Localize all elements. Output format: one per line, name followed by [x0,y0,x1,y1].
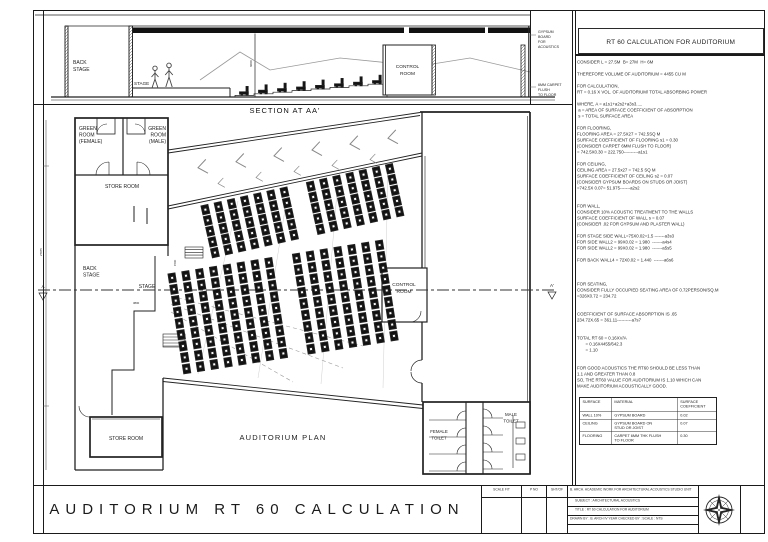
svg-text:(MALE): (MALE) [149,139,166,145]
svg-text:TO FLOOR: TO FLOOR [538,93,557,97]
border-top [33,10,765,11]
male-toilet-label: MALE [505,412,517,417]
svg-text:ACOUSTICS: ACOUSTICS [538,45,560,49]
section-seats [240,75,382,95]
calc-panel-body: CONSIDER L = 27.5M B= 27M H= 6M THEREFOR… [577,59,767,393]
carpet-note: 6MM CARPET [538,83,562,87]
control-room-label: CONTROL [392,282,416,288]
table-row: FLOORINGCARPET 6MM THK FLUSHTO FLOOR0.30 [580,432,717,445]
green-room-female-label: GREEN [79,126,97,132]
tb-cell-2: P NO [522,488,546,497]
material-table-wrap: SURFACEMATERIALSURFACECOEFFICIENTWALL 10… [579,397,719,493]
ceiling-band [132,28,530,34]
human-figure [152,66,159,88]
table-header: SURFACECOEFFICIENT [677,398,716,412]
calc-panel-title-box: RT 60 CALCULATION FOR AUDITORIUM [578,28,764,54]
section-back-stage-label2: STAGE [73,67,90,73]
stage-walls [112,256,155,415]
border-bottom [33,533,765,534]
section-control-room-label: CONTROL [396,64,420,70]
hall-top-wall [168,113,420,154]
tb-line [567,485,568,533]
svg-text:FOR: FOR [538,40,546,44]
svg-text:FLUSH: FLUSH [538,88,550,92]
tb-line [481,497,567,498]
svg-text:TOILET: TOILET [503,419,519,424]
table-cell: CARPET 6MM THK FLUSHTO FLOOR [612,432,678,445]
tb-info-1-text: B. ARCH. ACADEMIC WORK FOR ARCHITECTURAL… [570,488,692,492]
seating-steps [235,84,387,97]
plan-title: AUDITORIUM PLAN [239,433,326,442]
plan-drawing: GREEN ROOM (FEMALE) GREEN ROOM (MALE) ST… [33,106,573,485]
tb-cell-2-label: P NO [522,488,546,492]
tb-info-2-text: SUBJECT : ARCHITECTURAL ACOUSTICS [575,499,640,503]
female-toilet-label: FEMALE [430,429,448,434]
wall-hatch [65,26,68,97]
section-marker [548,292,556,299]
dim-text: 1500 [173,259,177,266]
svg-text:(FEMALE): (FEMALE) [79,139,103,145]
table-cell: GYPSUM BOARD ONSTUD OR JOIST [612,419,678,432]
table-header: SURFACE [580,398,612,412]
table-row: CEILINGGYPSUM BOARD ONSTUD OR JOIST0.07 [580,419,717,432]
green-room-male-label: GREEN [148,126,166,132]
svg-text:TOILET: TOILET [431,436,447,441]
table-cell: GYPSUM BOARD [612,411,678,419]
panel-title-underline [575,54,765,56]
table-cell: 0.02 [677,411,716,419]
wall-hatch [129,26,133,97]
human-figure [165,63,173,87]
tb-line [567,497,698,498]
svg-text:ROOM: ROOM [79,133,95,139]
table-cell: 0.30 [677,432,716,445]
calc-text: CONSIDER L = 27.5M B= 27M H= 6M THEREFOR… [577,59,767,389]
section-control-room-label2: ROOM [400,71,415,77]
tb-info-2: SUBJECT : ARCHITECTURAL ACOUSTICS [575,499,705,508]
marker-a: A [41,284,45,289]
table-header: MATERIAL [612,398,678,412]
tb-info-3-text: TITLE : RT 60 CALCULATION FOR AUDITORIUM [575,508,649,512]
material-table: SURFACEMATERIALSURFACECOEFFICIENTWALL 10… [579,397,717,445]
section-stage-label: STAGE [134,81,149,86]
dim-text: 27975 [39,248,43,256]
direction-chevrons [197,130,398,188]
compass-icon [699,490,739,530]
gypsum-note: GYPSUM [538,30,554,34]
tb-info-4-text: DRAWN BY : B. ARCH IV YEAR CHECKED BY : … [570,517,663,521]
section-back-stage-label: BACK [73,60,87,66]
tb-cell-3-label: SHT/OF [547,488,567,492]
dim-text: 3800 [133,301,140,305]
svg-text:ROOM: ROOM [397,289,412,295]
section-control-room [383,45,432,95]
svg-text:BOARD: BOARD [538,35,551,39]
table-cell: WALL 10% [580,411,612,419]
table-row: WALL 10%GYPSUM BOARD0.02 [580,411,717,419]
door-arc [79,406,90,417]
section-dim: 6000 [249,60,253,67]
tb-cell-1: SCALE FIT [482,488,521,497]
double-door-arc [411,360,422,383]
tb-cell-3: SHT/OF [547,488,567,497]
back-stage-label: BACK [83,266,97,272]
table-cell: 0.07 [677,419,716,432]
panel-left-line2 [575,10,576,486]
svg-text:STAGE: STAGE [83,273,100,279]
store-room-label: STORE ROOM [105,184,139,190]
stage-label: STAGE [139,284,156,290]
sheet-title: AUDITORIUM RT 60 CALCULATION [34,489,480,531]
store-room-2-label: STORE ROOM [109,436,143,442]
calc-panel-title: RT 60 CALCULATION FOR AUDITORIUM [607,37,736,45]
section-drawing: BACK STAGE STAGE CONTROL ROOM 6000 GYPSU… [33,12,573,106]
table-cell: FLOORING [580,432,612,445]
hall-bottom-wall [163,378,423,409]
drawing-sheet: BACK STAGE STAGE CONTROL ROOM 6000 GYPSU… [0,0,768,542]
marker-a-prime: A' [550,283,554,288]
table-cell: CEILING [580,419,612,432]
tb-cell-1-label: SCALE FIT [482,488,521,492]
svg-text:ROOM: ROOM [150,133,166,139]
